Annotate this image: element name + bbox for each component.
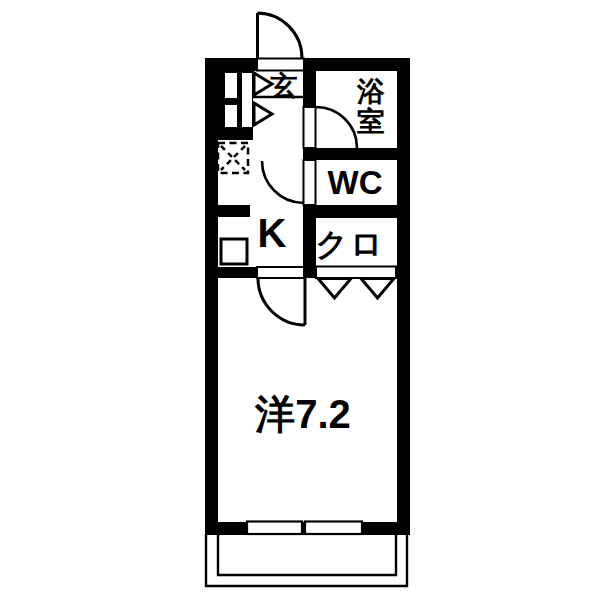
- bathroom-label-top: 浴: [356, 76, 385, 107]
- wall-utility-stub: [205, 205, 250, 217]
- kitchen-sink-icon: [221, 239, 247, 264]
- balcony-inner-rail: [218, 534, 396, 575]
- closet-label: クロ: [315, 226, 385, 262]
- bathroom-doorway: [304, 107, 316, 148]
- shoe-cabinet-box-bottom: [225, 105, 237, 127]
- room-labels: 玄 浴 室 WC K クロ 洋7.2: [254, 71, 385, 436]
- floor-plan-canvas: 玄 浴 室 WC K クロ 洋7.2: [0, 0, 600, 600]
- entrance-door-arc-icon: [258, 13, 303, 58]
- main-room-doorway: [257, 267, 304, 278]
- window-panel-right: [305, 522, 362, 535]
- western-room-label: 洋7.2: [254, 392, 351, 436]
- shoe-door-triangle-bottom-icon: [254, 103, 272, 125]
- balcony: [206, 534, 407, 586]
- entrance-doorway: [257, 59, 304, 71]
- closet-fold-v-left-icon: [318, 279, 351, 299]
- wall-top-right: [305, 58, 410, 71]
- entrance-label: 玄: [270, 71, 298, 101]
- bathroom-label-bottom: 室: [357, 106, 385, 137]
- bathroom-door-arc-icon: [316, 107, 357, 148]
- shoe-cabinet-box-top: [225, 73, 237, 98]
- shoe-cabinet-doors: [254, 73, 272, 125]
- floor-plan-drawing: 玄 浴 室 WC K クロ 洋7.2: [0, 0, 600, 600]
- balcony-outer-rail: [206, 534, 407, 586]
- shoe-cabinet-strip: [242, 73, 252, 127]
- closet-fold-v-right-icon: [361, 279, 394, 299]
- wall-right: [397, 58, 410, 535]
- main-room-door-arc-icon: [258, 278, 305, 325]
- closet-folding-doors: [318, 279, 394, 299]
- toilet-doorway: [304, 160, 316, 205]
- wall-wc-closet-divider: [303, 205, 410, 218]
- closet-door-track: [316, 267, 396, 279]
- shoe-door-triangle-top-icon: [254, 73, 272, 95]
- toilet-label: WC: [328, 164, 383, 201]
- window-panel-left: [247, 522, 302, 535]
- toilet-door-arc-icon: [262, 161, 304, 203]
- kitchen-label: K: [258, 211, 287, 255]
- wall-kitchen-bottom: [205, 267, 257, 278]
- wall-bath-wc-divider: [303, 148, 410, 160]
- washer-space-icon: [218, 143, 248, 173]
